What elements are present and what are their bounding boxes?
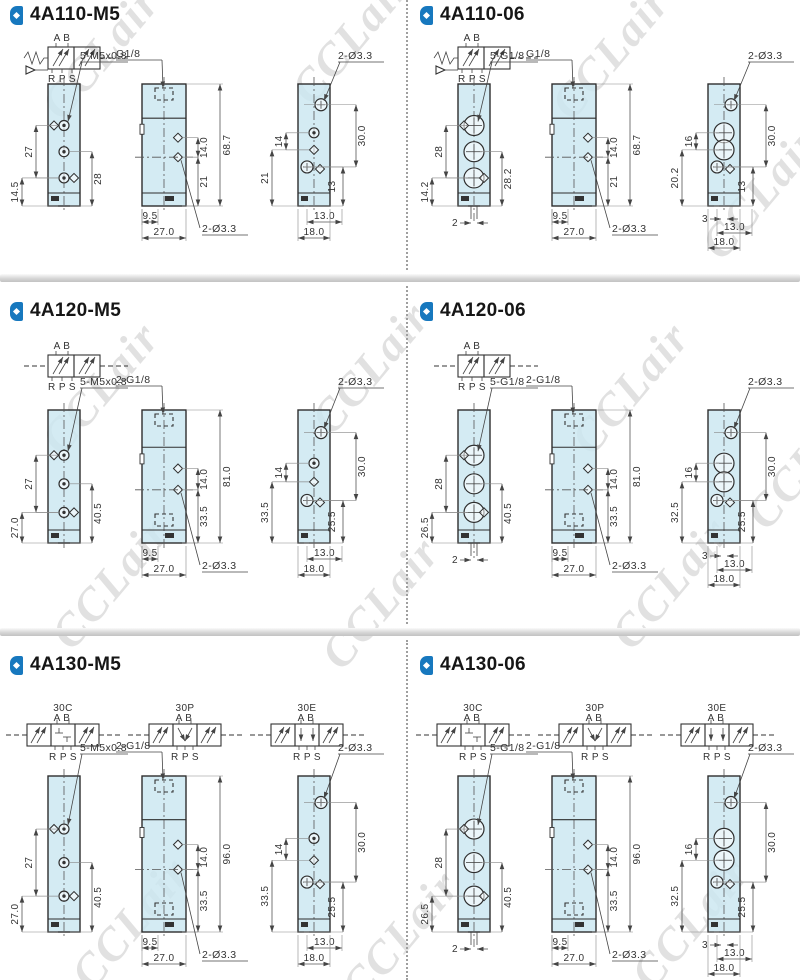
symbol-ports-top-label: A B xyxy=(586,713,603,724)
drawing-area: A BR P S5-G1/82826.540.522-G1/814.081.03… xyxy=(410,286,800,632)
port-thread-label: 2-G1/8 xyxy=(526,374,561,386)
dim-label: 13.0 xyxy=(724,948,745,959)
dim-label: 18.0 xyxy=(713,963,734,974)
dim-label: 28 xyxy=(434,478,445,490)
drawing-area: A BR P S5-M5x0.82727.040.52-G1/814.081.0… xyxy=(0,286,406,632)
dim-label: 14.2 xyxy=(420,181,431,202)
dim-label: 30.0 xyxy=(357,456,368,477)
dim-label: 3 xyxy=(702,940,708,951)
dim-label: 14.0 xyxy=(609,847,620,868)
dim-label: 27 xyxy=(24,857,35,869)
symbol-ports-top-label: A B xyxy=(54,341,71,352)
section-4A110-M5: 4A110-M5 A BR P S5-M5x0.82714.528G1/814.… xyxy=(0,0,406,278)
view-end-port-face: 2-Ø3.31632.530.025.5313.018.0 xyxy=(662,736,800,980)
dim-label: 27.0 xyxy=(563,953,584,964)
drawing-area: 30CA BR P S30PA BR P S30EA BR P S5-M5x0.… xyxy=(0,640,406,980)
dim-label: 13 xyxy=(327,180,338,192)
hole-diameter-label: 2-Ø3.3 xyxy=(202,949,237,961)
dim-label: 18.0 xyxy=(303,227,324,238)
dim-label: 9.5 xyxy=(142,548,157,559)
thread-spec-label: 5-G1/8 xyxy=(490,376,525,388)
section-4A110-06: 4A110-06 A BR P S5-G1/82814.228.22G1/814… xyxy=(410,0,800,278)
dim-label: 28 xyxy=(434,146,445,158)
dim-label: 68.7 xyxy=(222,134,233,155)
dim-label: 27.0 xyxy=(153,953,174,964)
port-thread-label: G1/8 xyxy=(116,48,140,60)
symbol-ports-top-label: A B xyxy=(176,713,193,724)
symbol-ports-top-label: A B xyxy=(54,33,71,44)
view-end-port-face: 2-Ø3.31433.530.025.513.018.0 xyxy=(252,370,406,601)
dim-label: 33.5 xyxy=(260,502,271,523)
dim-label: 13.0 xyxy=(314,548,335,559)
dim-label: 27 xyxy=(24,478,35,490)
dim-label: 40.5 xyxy=(93,887,104,908)
dim-label: 96.0 xyxy=(632,843,643,864)
dim-label: 9.5 xyxy=(552,937,567,948)
view-side-profile: 2-G1/814.096.033.59.527.02-Ø3.3 xyxy=(112,736,264,980)
dim-label: 28 xyxy=(434,857,445,869)
hole-diameter-label: 2-Ø3.3 xyxy=(338,50,373,62)
view-end-port-face: 2-Ø3.31620.230.013313.018.0 xyxy=(662,44,800,264)
dim-label: 14 xyxy=(274,135,285,147)
dim-label: 25.5 xyxy=(737,511,748,532)
dim-label: 30.0 xyxy=(767,456,778,477)
dim-label: 2 xyxy=(452,555,458,566)
hole-diameter-label: 2-Ø3.3 xyxy=(748,376,783,388)
dim-label: 30.0 xyxy=(767,832,778,853)
port-thread-label: 2-G1/8 xyxy=(526,740,561,752)
hole-diameter-label: 2-Ø3.3 xyxy=(612,223,647,235)
dim-label: 21 xyxy=(609,176,620,188)
drawing-area: A BR P S5-G1/82814.228.22G1/814.068.7219… xyxy=(410,0,800,278)
hole-diameter-label: 2-Ø3.3 xyxy=(612,560,647,572)
view-end-port-face: 2-Ø3.3142130.01313.018.0 xyxy=(252,44,406,264)
dim-label: 33.5 xyxy=(609,890,620,911)
dim-label: 27 xyxy=(24,146,35,158)
row-separator xyxy=(0,274,800,282)
dim-label: 27.0 xyxy=(153,227,174,238)
dim-label: 20.2 xyxy=(670,167,681,188)
column-divider xyxy=(406,640,408,980)
view-side-profile: G1/814.068.7219.527.02-Ø3.3 xyxy=(112,44,264,264)
view-side-profile: 2-G1/814.081.033.59.527.02-Ø3.3 xyxy=(112,370,264,601)
view-end-port-face: 2-Ø3.31433.530.025.513.018.0 xyxy=(252,736,406,980)
dim-label: 18.0 xyxy=(303,564,324,575)
dim-label: 40.5 xyxy=(93,503,104,524)
hole-diameter-label: 2-Ø3.3 xyxy=(748,742,783,754)
dim-label: 13.0 xyxy=(314,211,335,222)
dim-label: 33.5 xyxy=(609,506,620,527)
view-side-profile: 2-G1/814.096.033.59.527.02-Ø3.3 xyxy=(522,736,674,980)
dim-label: 14 xyxy=(274,843,285,855)
dim-label: 26.5 xyxy=(420,903,431,924)
port-thread-label: G1/8 xyxy=(526,48,550,60)
dim-label: 25.5 xyxy=(327,511,338,532)
dim-label: 13 xyxy=(737,180,748,192)
dim-label: 9.5 xyxy=(142,211,157,222)
dim-label: 13.0 xyxy=(724,559,745,570)
column-divider xyxy=(406,286,408,624)
dim-label: 3 xyxy=(702,214,708,225)
dim-label: 16 xyxy=(684,135,695,147)
view-end-port-face: 2-Ø3.31632.530.025.5313.018.0 xyxy=(662,370,800,601)
dim-label: 27.0 xyxy=(153,564,174,575)
symbol-ports-top-label: A B xyxy=(54,713,71,724)
view-side-profile: 2-G1/814.081.033.59.527.02-Ø3.3 xyxy=(522,370,674,601)
symbol-ports-top-label: A B xyxy=(464,713,481,724)
hole-diameter-label: 2-Ø3.3 xyxy=(338,376,373,388)
dim-label: 18.0 xyxy=(713,237,734,248)
hole-diameter-label: 2-Ø3.3 xyxy=(338,742,373,754)
hole-diameter-label: 2-Ø3.3 xyxy=(202,223,237,235)
dim-label: 18.0 xyxy=(713,574,734,585)
dim-label: 14.0 xyxy=(199,469,210,490)
dim-label: 9.5 xyxy=(142,937,157,948)
dim-label: 28.2 xyxy=(503,168,514,189)
dim-label: 13.0 xyxy=(314,937,335,948)
column-divider xyxy=(406,0,408,270)
dim-label: 2 xyxy=(452,944,458,955)
dim-label: 81.0 xyxy=(222,466,233,487)
dim-label: 81.0 xyxy=(632,466,643,487)
view-side-profile: G1/814.068.7219.527.02-Ø3.3 xyxy=(522,44,674,264)
catalog-page: CCLairCCLairCCLairCCLairCCLairCCLairCCLa… xyxy=(0,0,800,980)
thread-spec-label: 5-G1/8 xyxy=(490,50,525,62)
dim-label: 9.5 xyxy=(552,548,567,559)
drawing-area: 30CA BR P S30PA BR P S30EA BR P S5-G1/82… xyxy=(410,640,800,980)
row-separator xyxy=(0,628,800,636)
dim-label: 14.0 xyxy=(609,469,620,490)
symbol-ports-top-label: A B xyxy=(708,713,725,724)
dim-label: 32.5 xyxy=(670,502,681,523)
dim-label: 25.5 xyxy=(737,896,748,917)
dim-label: 14 xyxy=(274,467,285,479)
dim-label: 33.5 xyxy=(260,886,271,907)
dim-label: 2 xyxy=(452,218,458,229)
dim-label: 33.5 xyxy=(199,890,210,911)
dim-label: 25.5 xyxy=(327,896,338,917)
dim-label: 68.7 xyxy=(632,134,643,155)
dim-label: 32.5 xyxy=(670,886,681,907)
dim-label: 18.0 xyxy=(303,953,324,964)
dim-label: 16 xyxy=(684,843,695,855)
dim-label: 13.0 xyxy=(724,222,745,233)
section-4A120-M5: 4A120-M5 A BR P S5-M5x0.82727.040.52-G1/… xyxy=(0,286,406,632)
symbol-ports-top-label: A B xyxy=(298,713,315,724)
port-thread-label: 2-G1/8 xyxy=(116,374,151,386)
port-thread-label: 2-G1/8 xyxy=(116,740,151,752)
dim-label: 21 xyxy=(260,172,271,184)
hole-diameter-label: 2-Ø3.3 xyxy=(748,50,783,62)
dim-label: 27.0 xyxy=(10,517,21,538)
hole-diameter-label: 2-Ø3.3 xyxy=(612,949,647,961)
dim-label: 3 xyxy=(702,551,708,562)
dim-label: 33.5 xyxy=(199,506,210,527)
dim-label: 40.5 xyxy=(503,503,514,524)
dim-label: 27.0 xyxy=(563,564,584,575)
dim-label: 30.0 xyxy=(357,125,368,146)
dim-label: 27.0 xyxy=(10,903,21,924)
dim-label: 40.5 xyxy=(503,887,514,908)
symbol-ports-top-label: A B xyxy=(464,33,481,44)
dim-label: 26.5 xyxy=(420,517,431,538)
symbol-ports-top-label: A B xyxy=(464,341,481,352)
hole-diameter-label: 2-Ø3.3 xyxy=(202,560,237,572)
dim-label: 14.0 xyxy=(609,137,620,158)
dim-label: 96.0 xyxy=(222,843,233,864)
dim-label: 14.0 xyxy=(199,137,210,158)
dim-label: 14.5 xyxy=(10,181,21,202)
section-4A130-06: 4A130-06 30CA BR P S30PA BR P S30EA BR P… xyxy=(410,640,800,980)
dim-label: 30.0 xyxy=(767,125,778,146)
section-4A120-06: 4A120-06 A BR P S5-G1/82826.540.522-G1/8… xyxy=(410,286,800,632)
dim-label: 27.0 xyxy=(563,227,584,238)
dim-label: 16 xyxy=(684,467,695,479)
dim-label: 14.0 xyxy=(199,847,210,868)
dim-label: 30.0 xyxy=(357,832,368,853)
section-4A130-M5: 4A130-M5 30CA BR P S30PA BR P S30EA BR P… xyxy=(0,640,406,980)
drawing-area: A BR P S5-M5x0.82714.528G1/814.068.7219.… xyxy=(0,0,406,278)
dim-label: 21 xyxy=(199,176,210,188)
dim-label: 28 xyxy=(93,173,104,185)
thread-spec-label: 5-G1/8 xyxy=(490,742,525,754)
dim-label: 9.5 xyxy=(552,211,567,222)
